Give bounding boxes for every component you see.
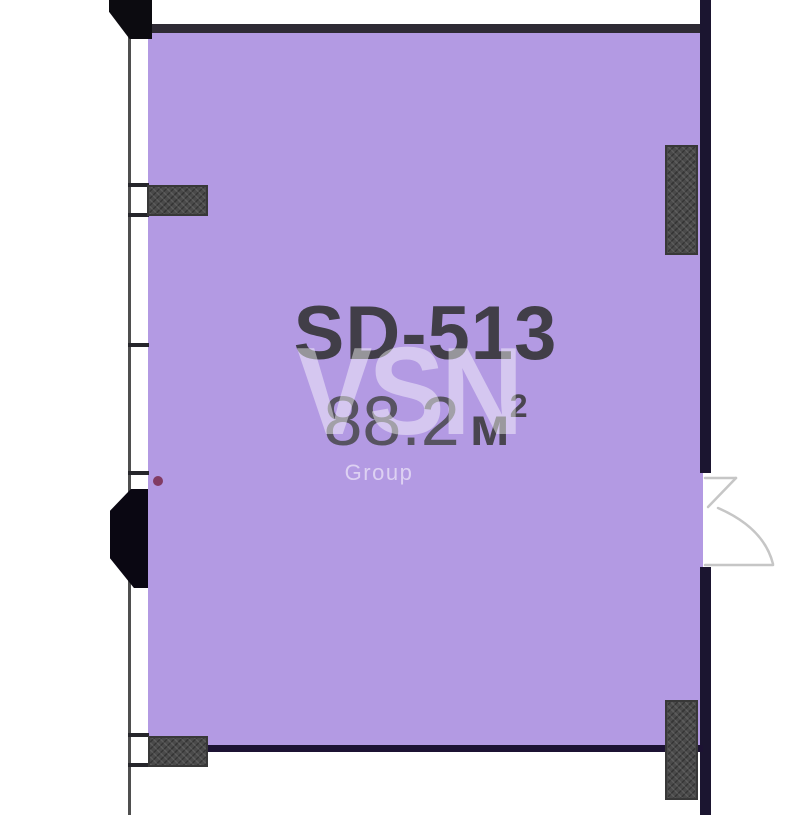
door-swing-arc <box>718 508 773 564</box>
tick-mark <box>128 343 149 347</box>
left-reference-line <box>128 34 131 815</box>
unit-room-area[interactable] <box>148 30 703 746</box>
door-swing-symbol <box>698 468 797 578</box>
structural-column-left <box>110 489 148 588</box>
hatched-wall-block-right-top <box>665 145 698 255</box>
floorplan-canvas: SD-513 88.2м2 VSN Group <box>0 0 797 815</box>
tick-mark <box>128 733 149 737</box>
tick-mark <box>128 183 149 187</box>
hatched-wall-block-left-bottom <box>148 736 208 767</box>
wall-top <box>145 24 711 33</box>
wall-bottom <box>205 745 703 752</box>
door-leaf-line <box>708 478 736 507</box>
hatched-wall-block-right-bottom <box>665 700 698 800</box>
wall-right-lower <box>700 567 711 815</box>
tick-mark <box>128 471 149 475</box>
structural-column-top-left <box>109 0 152 39</box>
wall-right-upper <box>700 0 711 473</box>
hatched-wall-block-left <box>147 185 208 216</box>
marker-dot <box>153 476 163 486</box>
tick-mark <box>128 213 149 217</box>
tick-mark <box>128 763 149 767</box>
